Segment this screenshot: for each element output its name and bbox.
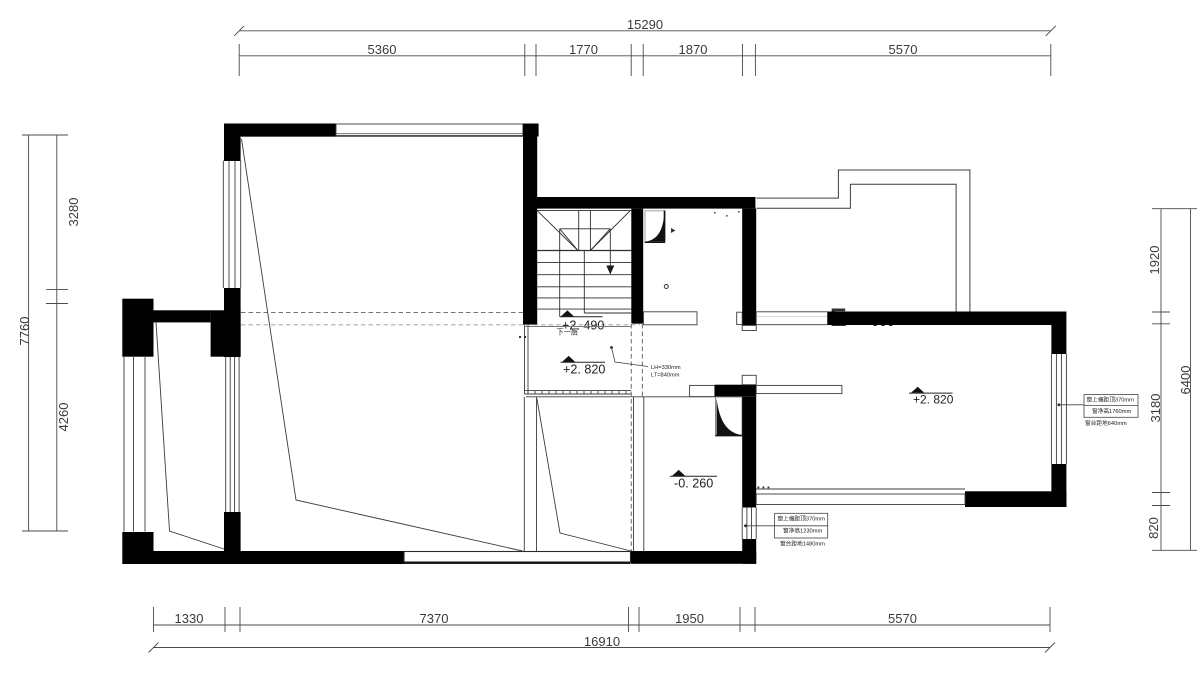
svg-text:3280: 3280 [66,198,81,227]
svg-text:+2. 820: +2. 820 [913,393,954,407]
svg-text:-0. 260: -0. 260 [674,477,713,491]
svg-text:6400: 6400 [1178,366,1193,395]
svg-text:+2. 820: +2. 820 [563,363,605,377]
svg-text:1920: 1920 [1147,246,1162,275]
svg-text:LH=330mm: LH=330mm [651,365,681,371]
svg-text:窗净高1230mm: 窗净高1230mm [783,527,822,535]
svg-text:5570: 5570 [889,42,918,57]
svg-text:窗台距地1480mm: 窗台距地1480mm [780,540,825,548]
svg-text:7370: 7370 [420,611,449,626]
svg-text:1950: 1950 [675,611,704,626]
svg-text:15290: 15290 [627,17,663,32]
svg-text:下一层: 下一层 [557,328,579,337]
svg-text:1870: 1870 [679,42,708,57]
svg-text:窗台距地640mm: 窗台距地640mm [1085,419,1127,427]
svg-text:窗上楣距顶370mm: 窗上楣距顶370mm [1087,396,1135,404]
svg-text:5570: 5570 [888,611,917,626]
svg-text:820: 820 [1146,517,1161,539]
svg-text:LT=840mm: LT=840mm [651,373,680,379]
svg-text:窗净高1760mm: 窗净高1760mm [1092,407,1131,415]
svg-text:4260: 4260 [56,403,71,432]
svg-text:3180: 3180 [1148,394,1163,423]
svg-text:1770: 1770 [569,42,598,57]
svg-text:16910: 16910 [584,634,620,649]
svg-text:1330: 1330 [175,611,204,626]
svg-text:5360: 5360 [368,42,397,57]
svg-text:窗上楣距顶370mm: 窗上楣距顶370mm [778,515,826,523]
svg-text:7760: 7760 [17,317,32,346]
